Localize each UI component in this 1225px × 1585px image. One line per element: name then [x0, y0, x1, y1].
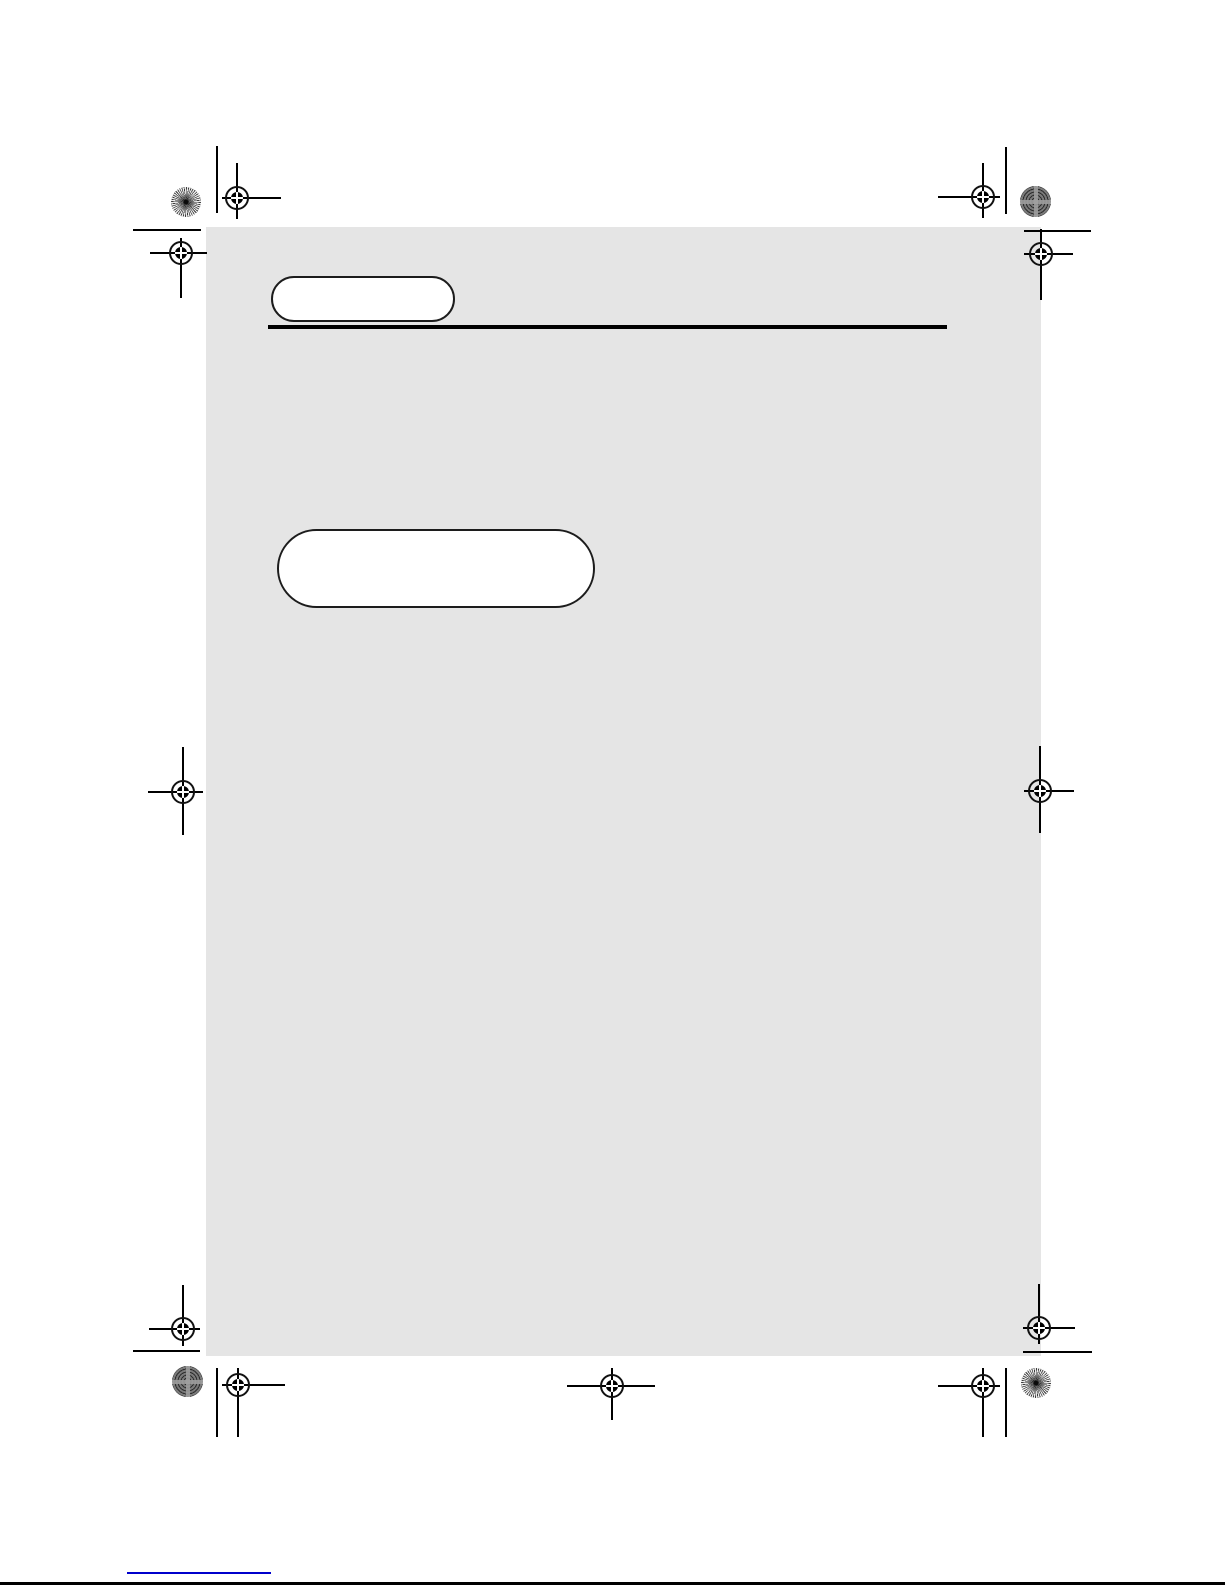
document-page [206, 227, 1041, 1356]
crop-line-icon [1005, 147, 1007, 214]
crop-line-icon [216, 146, 218, 213]
print-preview-canvas [0, 0, 1225, 1585]
section-rule [268, 325, 947, 329]
callout-pill-large [277, 529, 595, 608]
crop-line-icon [133, 1350, 200, 1352]
starburst-pattern-icon [1021, 1368, 1051, 1398]
callout-pill-small [271, 276, 455, 322]
footer-link-underline[interactable] [127, 1572, 271, 1574]
moire-pattern-icon [172, 1366, 203, 1397]
crop-line-icon [1005, 1368, 1007, 1437]
starburst-pattern-icon [171, 187, 201, 217]
crop-line-icon [133, 229, 201, 231]
moire-pattern-icon [1020, 186, 1051, 217]
crop-line-icon [216, 1368, 218, 1437]
crop-line-icon [1023, 1351, 1092, 1353]
crop-line-icon [1024, 230, 1091, 232]
